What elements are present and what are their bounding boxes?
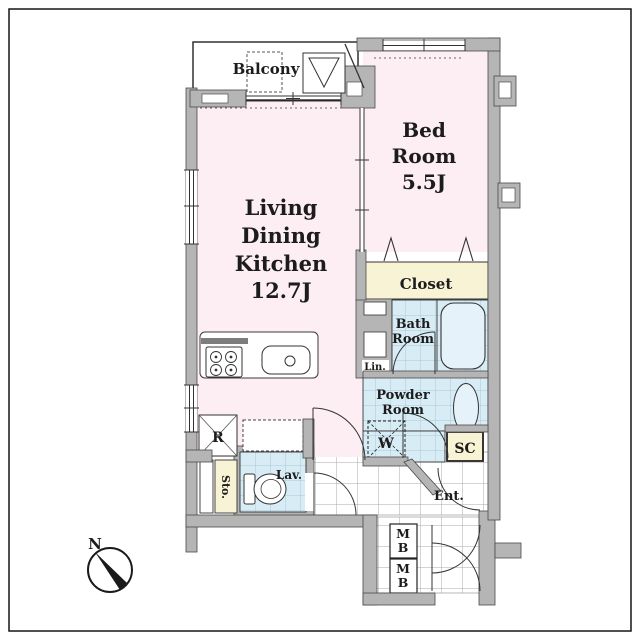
compass-north-label: N [88, 535, 102, 553]
meter-box-2-line1: M [396, 561, 410, 576]
ldk-label-line1: Living [245, 195, 318, 220]
wall-ldk-bottom [186, 450, 212, 462]
kitchen-counter [200, 332, 318, 378]
closet-label: Closet [400, 275, 453, 293]
wall-sc-top [445, 425, 488, 432]
entrance-label: Ent. [434, 489, 464, 504]
meter-box-1-line2: B [398, 540, 409, 555]
meter-box-2-line2: B [398, 575, 409, 590]
bathroom-label-line1: Bath [396, 317, 431, 332]
floor-plan-page: N Balcony Bed Room 5.5J Living Dining Ki… [0, 0, 640, 640]
wall-stub-entry [495, 543, 521, 558]
bathtub [441, 303, 485, 369]
bedroom-size-label: 5.5J [402, 170, 446, 194]
wall-bottom [186, 515, 377, 527]
stove [206, 347, 242, 377]
wall-left [186, 88, 197, 552]
wall-closet-left [356, 250, 366, 300]
cupboard-space [243, 420, 303, 451]
window-left-upper [184, 170, 199, 244]
powder-room-label-line1: Powder [376, 388, 430, 403]
floor-plan-drawing: N Balcony Bed Room 5.5J Living Dining Ki… [0, 0, 640, 640]
wall-entry-left [363, 515, 377, 605]
ldk-label-line3: Kitchen [235, 251, 328, 276]
evacuation-hatch [303, 53, 345, 93]
wall-stub-ldk-door [303, 419, 314, 458]
washer-label: W [377, 436, 394, 452]
window-left-kitchen [184, 385, 199, 432]
storage-label: Sto. [219, 475, 232, 499]
ldk-size-label: 12.7J [250, 278, 311, 303]
shoe-closet-label: SC [454, 441, 475, 457]
closet-strip [200, 460, 213, 513]
wall-right [488, 38, 500, 520]
bathroom-label-line2: Room [392, 332, 434, 347]
bedroom-label-line1: Bed [402, 118, 446, 142]
wall-entry-right [479, 511, 495, 605]
balcony-label: Balcony [233, 60, 301, 78]
kitchen-sink [262, 346, 310, 374]
bedroom-label-line2: Room [392, 144, 456, 168]
ldk-label-line2: Dining [241, 223, 321, 248]
linen-label: Lin. [364, 362, 386, 373]
range-hood [201, 338, 248, 344]
powder-room-label-line2: Room [382, 403, 424, 418]
wall-powder-bottom [363, 457, 408, 466]
refrigerator-label: R [212, 430, 224, 446]
meter-box-1-line1: M [396, 526, 410, 541]
lavatory-label: Lav. [276, 468, 302, 482]
wall-entry-bottom [363, 593, 435, 605]
